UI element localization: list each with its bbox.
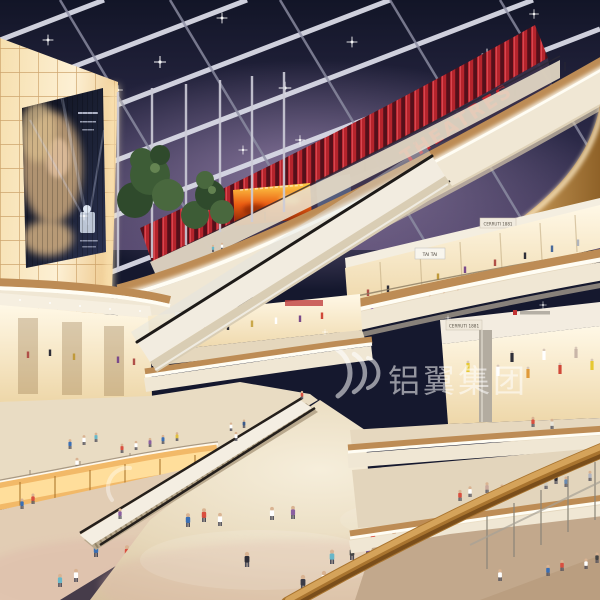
cerruti-sign-upper: CERRUTI 1881 xyxy=(480,218,516,228)
perfume-billboard xyxy=(20,88,106,268)
scene-canvas: THEATRES CERRUTI 1881 TAI TAI xyxy=(0,0,600,600)
svg-text:TAI TAI: TAI TAI xyxy=(422,252,438,258)
mall-atrium-rendering: THEATRES CERRUTI 1881 TAI TAI xyxy=(0,0,600,600)
store-logo-mark xyxy=(513,310,517,315)
level2-left-store-details xyxy=(18,318,135,396)
cerruti-sign-lower: CERRUTI 1881 xyxy=(446,320,482,330)
svg-text:CERRUTI 1881: CERRUTI 1881 xyxy=(484,222,513,227)
tai-tai-sign: TAI TAI xyxy=(415,248,445,259)
svg-text:CERRUTI 1881: CERRUTI 1881 xyxy=(449,324,480,329)
watermark-text: 铝翼集团 xyxy=(388,362,528,400)
